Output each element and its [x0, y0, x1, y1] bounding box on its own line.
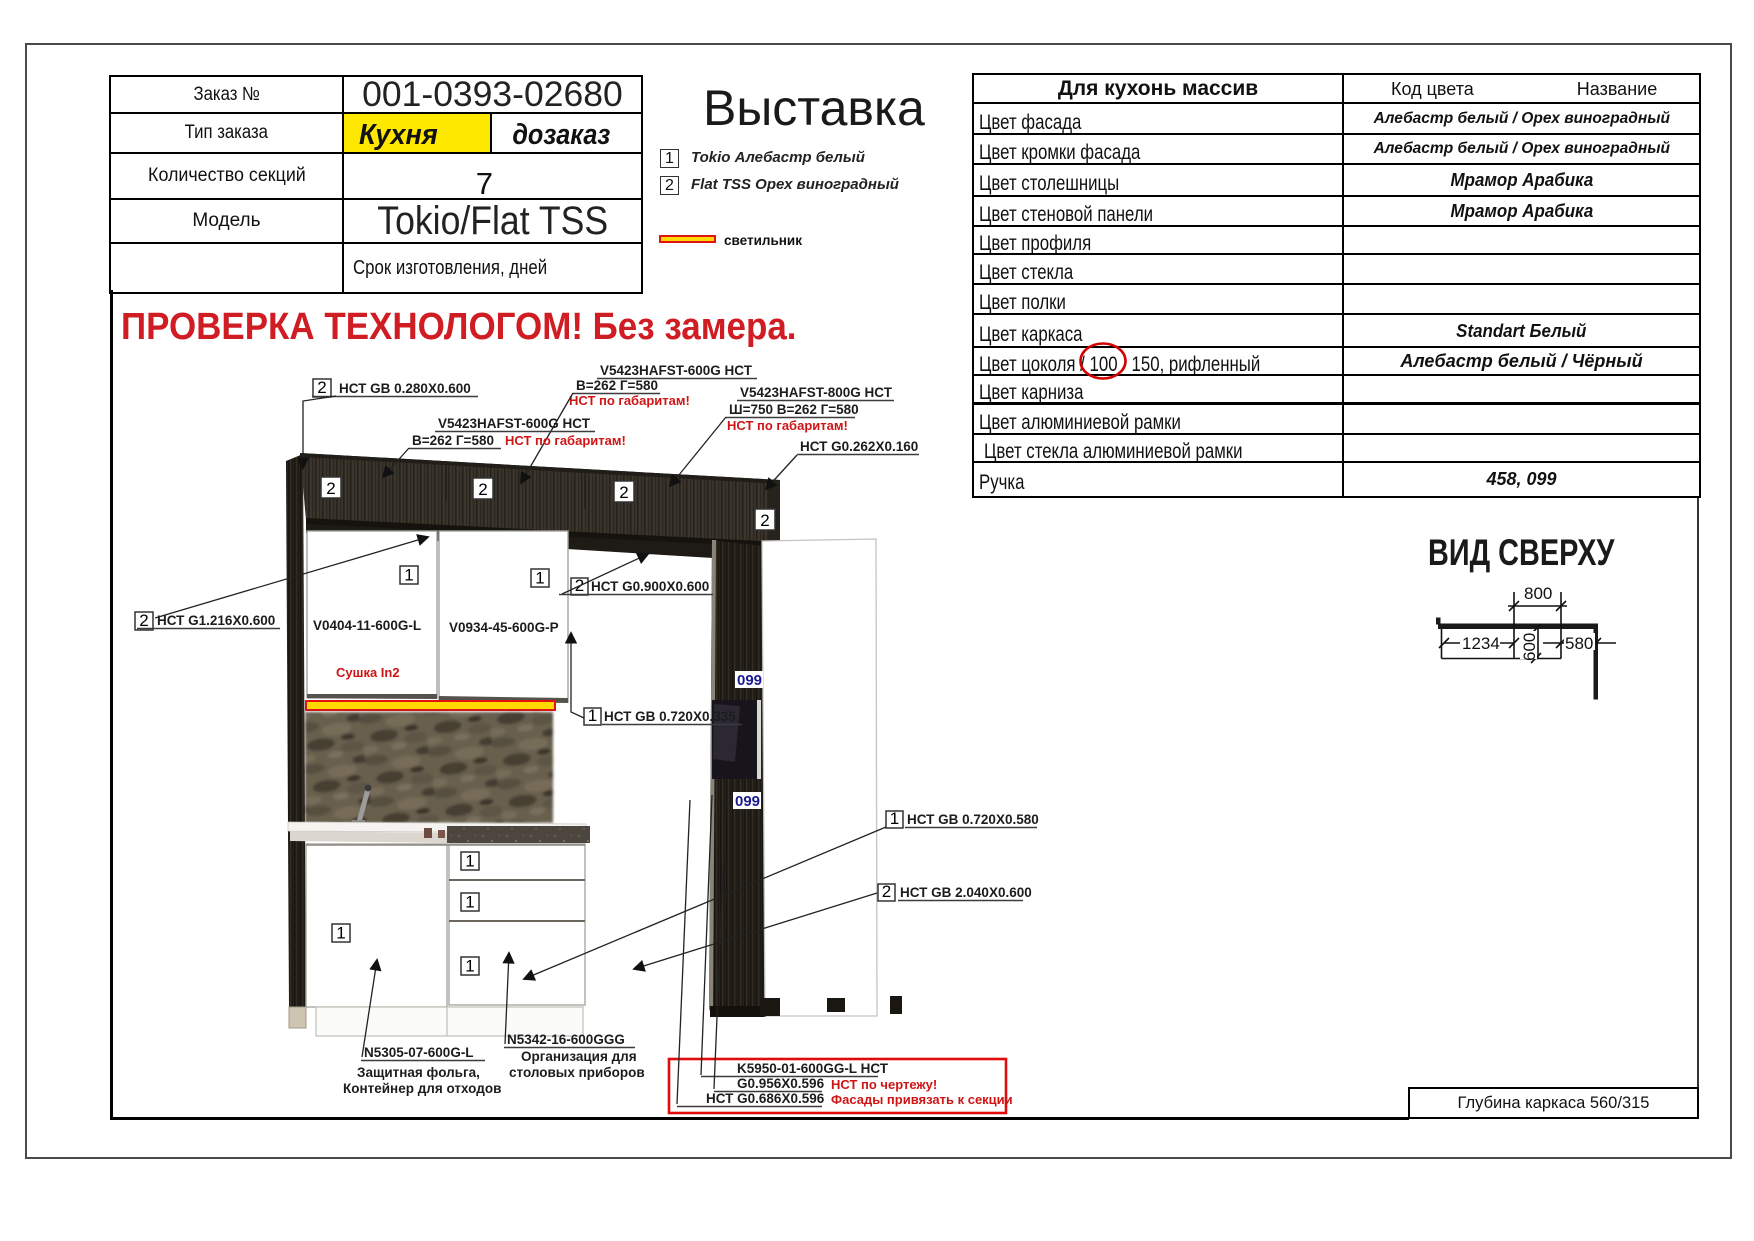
- svg-text:Фасады привязать к секции: Фасады привязать к секции: [831, 1092, 1013, 1107]
- svg-text:099: 099: [735, 793, 760, 810]
- svg-text:1: 1: [535, 569, 544, 588]
- svg-text:2: 2: [326, 479, 335, 498]
- svg-text:НСТ GB 0.280X0.600: НСТ GB 0.280X0.600: [339, 381, 471, 396]
- svg-text:V0934-45-600G-P: V0934-45-600G-P: [449, 620, 559, 635]
- svg-text:V5423HAFST-800G НСТ: V5423HAFST-800G НСТ: [740, 385, 893, 400]
- svg-text:1: 1: [465, 852, 474, 871]
- svg-text:580: 580: [1565, 634, 1593, 653]
- svg-text:1: 1: [465, 957, 474, 976]
- svg-text:2: 2: [882, 882, 891, 901]
- svg-text:1: 1: [404, 566, 413, 585]
- svg-text:Организация для: Организация для: [521, 1049, 637, 1064]
- svg-text:Сушка In2: Сушка In2: [336, 665, 400, 680]
- svg-text:Контейнер для отходов: Контейнер для отходов: [343, 1081, 501, 1096]
- svg-text:НСТ GB 0.720X0.335: НСТ GB 0.720X0.335: [604, 709, 736, 724]
- svg-text:В=262 Г=580: В=262 Г=580: [576, 378, 658, 393]
- svg-text:1: 1: [336, 924, 345, 943]
- svg-text:НСТ G1.216X0.600: НСТ G1.216X0.600: [157, 613, 275, 628]
- svg-text:Защитная фольга,: Защитная фольга,: [357, 1065, 480, 1080]
- svg-text:НСТ по чертежу!: НСТ по чертежу!: [831, 1077, 937, 1092]
- svg-text:НСТ по габаритам!: НСТ по габаритам!: [727, 418, 848, 433]
- svg-text:V5423HAFST-600G НСТ: V5423HAFST-600G НСТ: [600, 363, 753, 378]
- svg-text:099: 099: [737, 672, 762, 689]
- svg-text:НСТ G0.900X0.600: НСТ G0.900X0.600: [591, 579, 709, 594]
- svg-text:Ш=750 В=262 Г=580: Ш=750 В=262 Г=580: [729, 402, 859, 417]
- svg-text:НСТ G0.262X0.160: НСТ G0.262X0.160: [800, 439, 918, 454]
- svg-text:В=262 Г=580: В=262 Г=580: [412, 433, 494, 448]
- svg-text:НСТ по габаритам!: НСТ по габаритам!: [505, 433, 626, 448]
- svg-text:2: 2: [760, 511, 769, 530]
- svg-text:НСТ по габаритам!: НСТ по габаритам!: [569, 393, 690, 408]
- svg-text:N5305-07-600G-L: N5305-07-600G-L: [364, 1045, 474, 1060]
- svg-text:НСТ GB 2.040X0.600: НСТ GB 2.040X0.600: [900, 885, 1032, 900]
- svg-text:2: 2: [619, 483, 628, 502]
- svg-text:V5423HAFST-600G НСТ: V5423HAFST-600G НСТ: [438, 416, 591, 431]
- svg-text:столовых приборов: столовых приборов: [509, 1065, 645, 1080]
- svg-text:600: 600: [1520, 633, 1539, 661]
- svg-text:НСТ G0.686X0.596: НСТ G0.686X0.596: [706, 1091, 825, 1106]
- svg-text:N5342-16-600GGG: N5342-16-600GGG: [507, 1032, 625, 1047]
- svg-text:K5950-01-600GG-L НСТ: K5950-01-600GG-L НСТ: [737, 1061, 889, 1076]
- svg-text:2: 2: [317, 378, 326, 397]
- svg-text:V0404-11-600G-L: V0404-11-600G-L: [313, 618, 421, 633]
- svg-text:2: 2: [139, 611, 148, 630]
- svg-text:1: 1: [890, 809, 899, 828]
- svg-text:G0.956X0.596: G0.956X0.596: [737, 1076, 825, 1091]
- svg-text:1234: 1234: [1462, 634, 1500, 653]
- svg-text:800: 800: [1524, 584, 1552, 603]
- svg-text:НСТ GB 0.720X0.580: НСТ GB 0.720X0.580: [907, 812, 1039, 827]
- svg-text:1: 1: [465, 893, 474, 912]
- svg-text:2: 2: [478, 480, 487, 499]
- svg-text:1: 1: [588, 706, 597, 725]
